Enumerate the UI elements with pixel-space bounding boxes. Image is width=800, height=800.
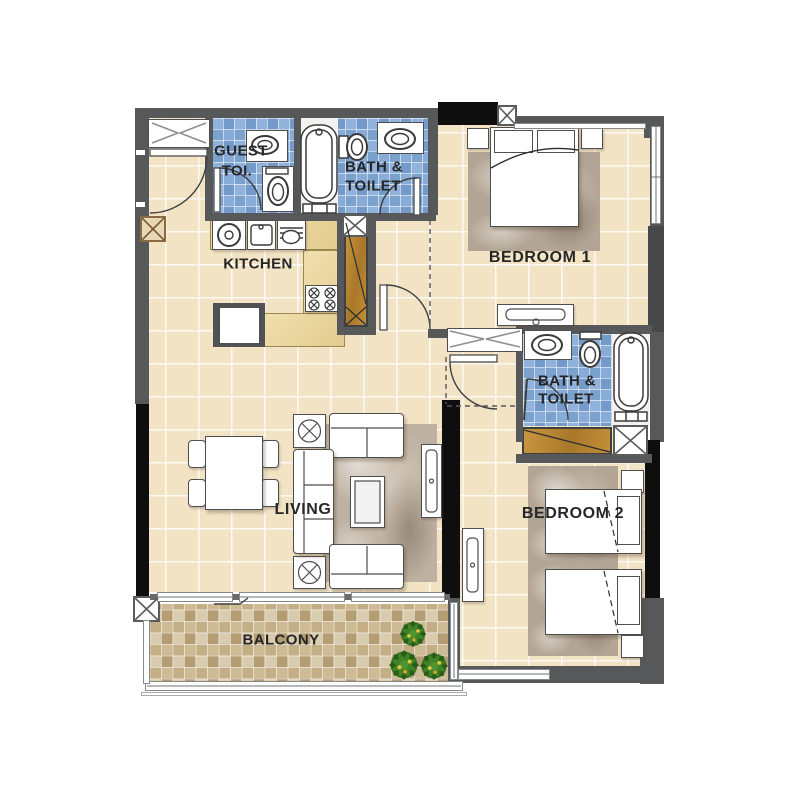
dining-chair <box>188 440 206 468</box>
pillow <box>494 130 533 153</box>
bath-1-sink <box>377 122 424 154</box>
wall <box>368 213 376 334</box>
dresser <box>497 304 574 326</box>
column-marker <box>613 425 648 456</box>
nightstand <box>621 635 644 658</box>
column-marker <box>342 214 368 237</box>
dining-table <box>205 436 263 510</box>
kitchen-counter-bottom <box>264 313 345 347</box>
fridge-body <box>219 307 260 344</box>
balcony-rail-left <box>143 620 150 684</box>
room-label-living: LIVING <box>275 501 332 519</box>
bath-2-wardrobe <box>522 427 612 455</box>
guest-wc <box>262 166 294 212</box>
structural-wall <box>136 404 149 597</box>
bath-2-sink <box>524 330 572 360</box>
room-label-guest-toilet-2: TOI. <box>222 163 253 180</box>
room-label-bath-2-line2: TOILET <box>538 391 593 408</box>
room-label-bath-1-line1: BATH & <box>345 159 403 176</box>
column-marker <box>140 216 166 242</box>
structural-wall <box>645 440 660 600</box>
floor-plan: GUEST TOI. BATH & TOILET KITCHEN BEDROOM… <box>0 0 800 800</box>
wall <box>428 108 438 215</box>
nightstand <box>581 128 603 149</box>
window <box>651 126 661 224</box>
room-label-bedroom-1: BEDROOM 1 <box>489 249 591 267</box>
window <box>239 592 345 602</box>
wall <box>648 226 664 332</box>
window <box>351 592 445 602</box>
washing-machine <box>212 220 246 250</box>
tub-area-bath-1 <box>299 118 338 214</box>
entry-closet <box>148 119 210 148</box>
dish-drainer <box>277 220 306 250</box>
dining-chair <box>261 440 279 468</box>
side-table <box>293 414 326 448</box>
window <box>458 669 550 680</box>
kitchen-sink <box>247 220 276 250</box>
window <box>514 123 646 129</box>
room-label-bath-1-line2: TOILET <box>345 178 400 195</box>
wall-notch <box>136 202 145 207</box>
pillow <box>617 576 640 625</box>
stove <box>305 285 338 312</box>
hall-closet <box>447 328 523 352</box>
wall-notch <box>136 150 145 155</box>
dining-chair <box>188 479 206 507</box>
window <box>450 602 458 680</box>
wall <box>135 108 438 118</box>
sofa-two-seat-top <box>329 413 404 458</box>
structural-wall <box>438 102 498 125</box>
window <box>157 592 233 602</box>
room-label-balcony: BALCONY <box>243 632 320 649</box>
coffee-table <box>350 476 385 528</box>
tv-console <box>421 444 442 518</box>
dresser <box>462 528 484 602</box>
room-label-bath-2-line1: BATH & <box>538 373 596 390</box>
sofa-two-seat-bottom <box>329 544 404 589</box>
wall <box>650 332 664 442</box>
side-table <box>293 556 326 589</box>
balcony-rail-outline <box>141 692 467 696</box>
room-label-kitchen: KITCHEN <box>223 256 292 273</box>
room-label-bedroom-2: BEDROOM 2 <box>522 505 624 523</box>
room-label-guest-toilet-1: GUEST <box>214 143 268 160</box>
wall <box>337 327 376 335</box>
balcony-rail-bottom <box>145 681 463 691</box>
nightstand <box>467 128 489 149</box>
wall <box>294 116 301 215</box>
pillow <box>537 130 575 153</box>
tub-area-bath-2 <box>612 330 650 426</box>
structural-wall <box>442 400 460 598</box>
